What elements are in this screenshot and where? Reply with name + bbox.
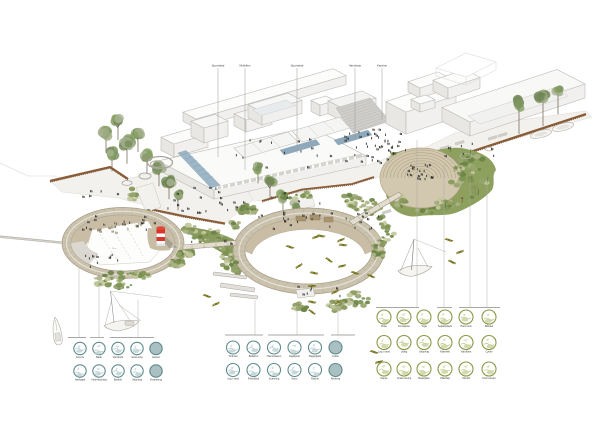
svg-text:50 m: 50 m [112,248,117,250]
svg-text:Kano: Kano [292,378,298,381]
svg-text:Badefjæle: Badefjæle [418,377,430,380]
svg-text:Trinbræt: Trinbræt [228,355,238,358]
svg-text:Gutter: Gutter [332,355,339,358]
svg-text:Kajakpolo: Kajakpolo [289,355,301,358]
svg-text:Klatrefelt: Klatrefelt [440,351,450,354]
svg-text:Vandkant: Vandkant [461,351,472,354]
svg-text:Havkajak: Havkajak [75,378,86,381]
svg-text:Soppe: Soppe [380,377,388,380]
svg-text:Hammock: Hammock [460,325,472,328]
svg-text:Forankring: Forankring [150,378,163,381]
svg-text:Undervisning: Undervisning [397,377,412,380]
svg-text:Roklub: Roklub [311,378,319,381]
svg-text:Udspring: Udspring [132,378,143,381]
svg-text:Bålsted: Bålsted [485,325,494,328]
svg-text:Sportshal: Sportshal [212,64,225,68]
svg-text:Kantine: Kantine [377,64,388,68]
svg-text:Fiske: Fiske [381,325,388,328]
svg-text:Redning: Redning [331,378,341,381]
svg-text:Sejladsplads: Sejladsplads [438,325,453,328]
svg-text:Ophold: Ophold [462,377,471,380]
svg-text:Dagsejlads: Dagsejlads [309,355,322,358]
svg-text:Scanning: Scanning [269,378,280,381]
svg-text:Sportshal: Sportshal [291,64,304,68]
svg-text:Leg i vand: Leg i vand [378,351,390,354]
svg-text:Cykler: Cykler [485,351,492,354]
svg-text:Kridt vander: Kridt vander [482,377,496,380]
svg-text:Vandpolo: Vandpolo [113,356,124,359]
svg-text:Leg i vand: Leg i vand [227,378,239,381]
svg-text:Fiskbillard: Fiskbillard [248,378,260,381]
svg-text:Events: Events [76,356,84,359]
svg-text:Udspring: Udspring [419,351,430,354]
svg-text:Fornøjelse: Fornøjelse [398,325,410,328]
svg-text:Badeliv: Badeliv [114,378,123,381]
svg-text:Yoga: Yoga [421,325,427,328]
svg-text:Havnebassin: Havnebassin [267,355,282,358]
svg-text:Pilkefløjt: Pilkefløjt [440,377,450,380]
svg-text:Udkig: Udkig [401,351,408,354]
svg-text:Multiflex: Multiflex [239,64,251,68]
svg-text:Vandveje: Vandveje [349,64,362,68]
svg-text:Svømning: Svømning [131,356,143,359]
svg-text:Gæster: Gæster [152,356,161,359]
svg-text:Bade: Bade [96,356,102,359]
svg-text:Vinterbadning: Vinterbadning [91,378,107,381]
svg-text:Badebro: Badebro [249,355,259,358]
